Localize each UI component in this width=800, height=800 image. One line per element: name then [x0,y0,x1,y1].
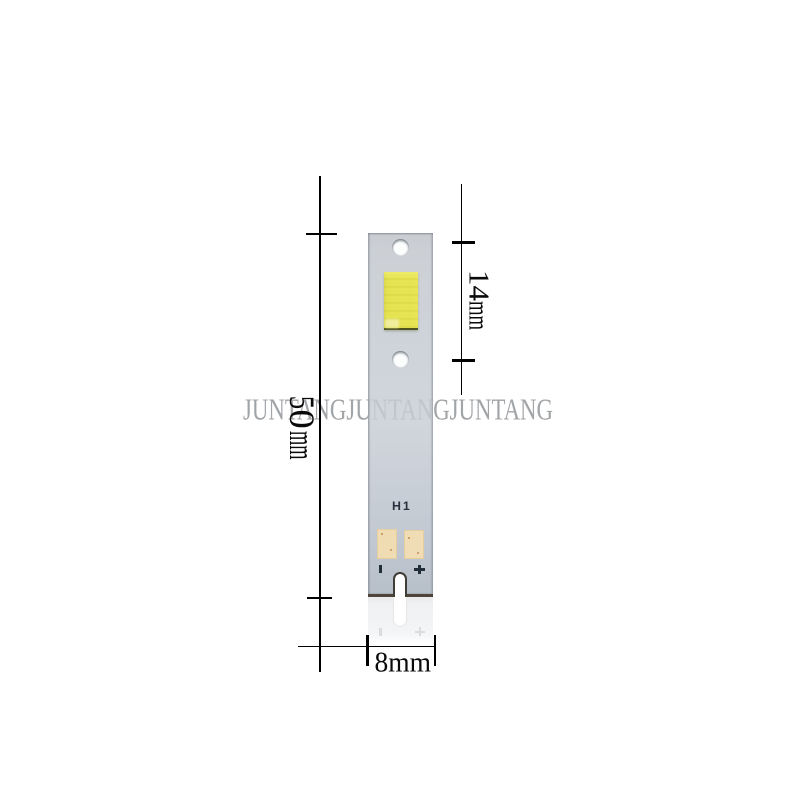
svg-text:14: 14 [463,270,495,302]
svg-text:mm: mm [282,431,322,460]
svg-text:0: 0 [282,409,322,428]
svg-text:mm: mm [463,301,495,330]
svg-text:8mm: 8mm [375,648,432,679]
svg-text:5: 5 [282,396,322,409]
